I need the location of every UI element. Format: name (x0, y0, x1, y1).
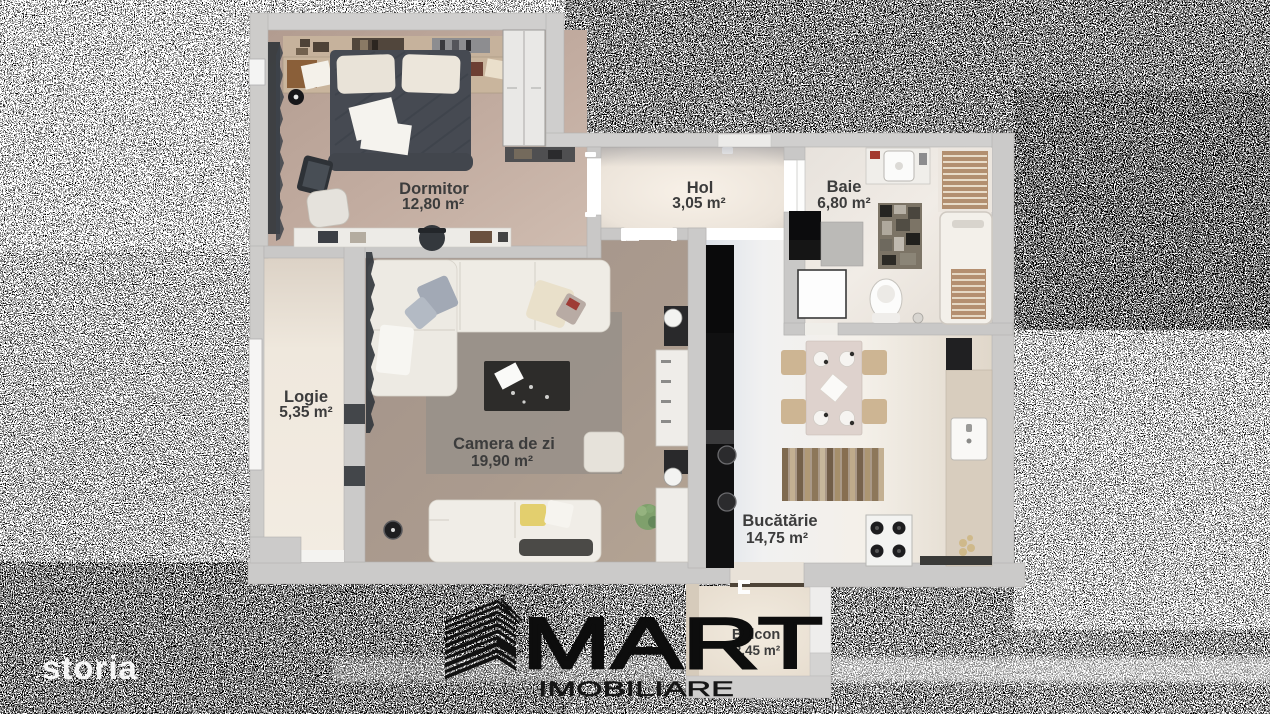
svg-text:IMOBILIARE: IMOBILIARE (538, 678, 734, 701)
svg-text:Bucătărie: Bucătărie (742, 512, 817, 530)
svg-text:MART: MART (522, 604, 823, 684)
svg-text:5,35 m²: 5,35 m² (279, 404, 332, 421)
svg-text:Camera de zi: Camera de zi (453, 435, 555, 453)
svg-text:storia: storia (42, 649, 138, 686)
svg-text:6,80 m²: 6,80 m² (817, 195, 870, 212)
svg-text:12,80 m²: 12,80 m² (402, 196, 464, 213)
svg-text:3,05 m²: 3,05 m² (672, 195, 725, 212)
svg-text:Baie: Baie (827, 178, 862, 196)
svg-text:14,75 m²: 14,75 m² (746, 530, 808, 547)
svg-text:19,90 m²: 19,90 m² (471, 453, 533, 470)
